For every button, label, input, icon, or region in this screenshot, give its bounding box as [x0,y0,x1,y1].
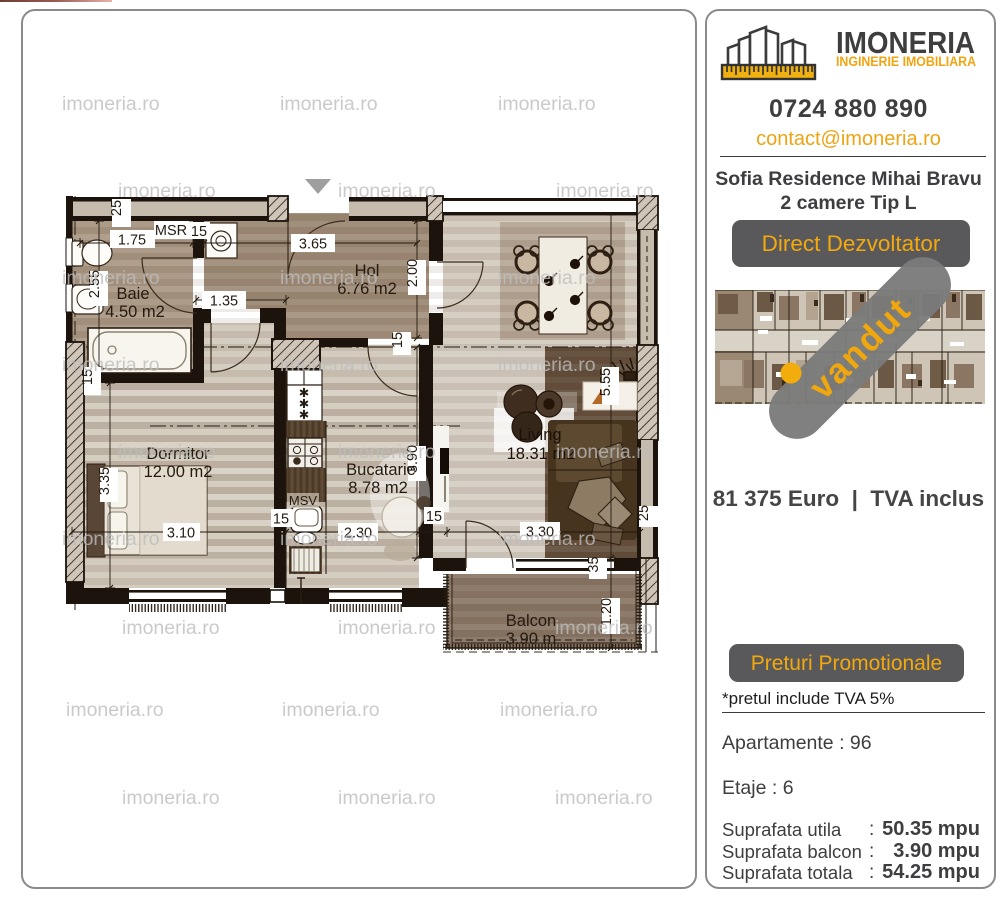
svg-text:imoneria.ro: imoneria.ro [62,528,160,550]
svg-text:Balcon: Balcon [506,612,556,630]
svg-text:imoneria.ro: imoneria.ro [338,180,436,202]
svg-text:imoneria.ro: imoneria.ro [555,617,653,639]
svg-text:imoneria.ro: imoneria.ro [498,93,596,115]
svg-text:imoneria.ro: imoneria.ro [498,354,596,376]
svg-text:imoneria.ro: imoneria.ro [280,528,378,550]
svg-text:2.00: 2.00 [405,259,421,287]
svg-text:imoneria.ro: imoneria.ro [498,267,596,289]
svg-text:✱: ✱ [299,408,310,422]
svg-text:imoneria.ro: imoneria.ro [556,441,654,463]
svg-text:MSV: MSV [289,493,318,508]
svg-text:15: 15 [191,224,207,240]
svg-text:imoneria.ro: imoneria.ro [122,617,220,639]
svg-text:15: 15 [390,332,406,348]
svg-text:imoneria.ro: imoneria.ro [338,617,436,639]
svg-text:imoneria.ro: imoneria.ro [280,93,378,115]
svg-text:imoneria.ro: imoneria.ro [500,699,598,721]
svg-text:3.65: 3.65 [299,237,327,253]
svg-text:1.75: 1.75 [118,233,146,249]
svg-text:Bucatarie: Bucatarie [346,461,416,479]
svg-text:8.78 m2: 8.78 m2 [348,479,408,497]
svg-text:imoneria.ro: imoneria.ro [498,528,596,550]
svg-text:1.35: 1.35 [210,294,238,310]
svg-text:3.90 m: 3.90 m [506,630,556,648]
svg-text:3.35: 3.35 [97,467,113,495]
svg-text:imoneria.ro: imoneria.ro [62,354,160,376]
svg-text:15: 15 [273,512,289,528]
svg-text:imoneria.ro: imoneria.ro [118,441,216,463]
svg-text:imoneria.ro: imoneria.ro [66,699,164,721]
svg-text:35: 35 [586,556,602,572]
svg-text:imoneria.ro: imoneria.ro [122,787,220,809]
svg-text:imoneria.ro: imoneria.ro [338,787,436,809]
svg-text:3.10: 3.10 [167,526,195,542]
svg-text:imoneria.ro: imoneria.ro [556,180,654,202]
svg-text:5.55: 5.55 [598,368,614,396]
svg-text:25: 25 [636,505,652,521]
svg-text:12.00 m2: 12.00 m2 [144,463,213,481]
svg-text:4.50 m2: 4.50 m2 [105,303,165,321]
svg-text:imoneria.ro: imoneria.ro [280,267,378,289]
svg-text:15: 15 [426,509,442,525]
svg-text:imoneria.ro: imoneria.ro [282,699,380,721]
svg-text:imoneria.ro: imoneria.ro [62,267,160,289]
svg-text:MSR: MSR [155,223,187,239]
svg-text:imoneria.ro: imoneria.ro [62,93,160,115]
svg-text:imoneria.ro: imoneria.ro [118,180,216,202]
svg-text:25: 25 [109,200,125,216]
svg-text:imoneria.ro: imoneria.ro [280,354,378,376]
svg-text:imoneria.ro: imoneria.ro [555,787,653,809]
svg-text:imoneria.ro: imoneria.ro [338,441,436,463]
